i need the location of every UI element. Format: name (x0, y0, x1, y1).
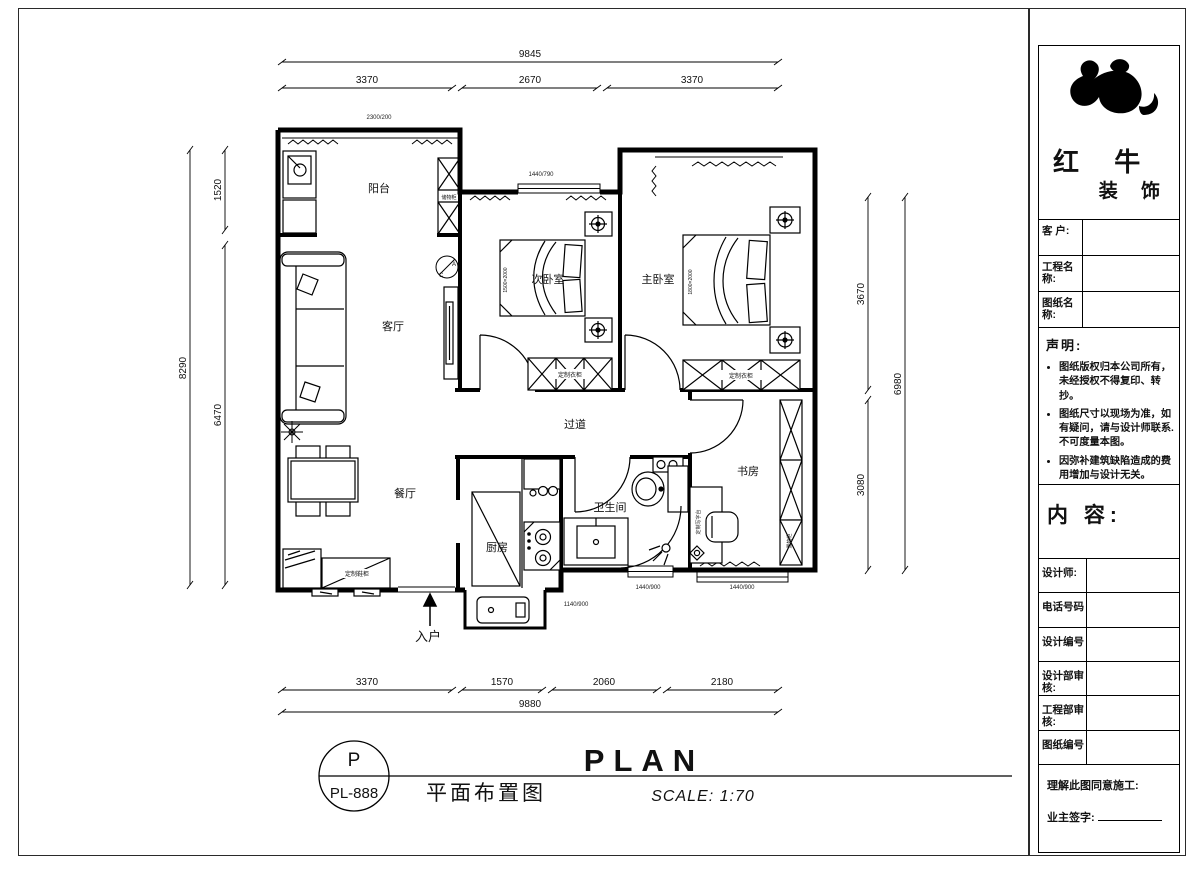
drawing-code-letter: P (348, 750, 361, 771)
brand-subname: 装 饰 (1099, 176, 1169, 203)
field-label-project: 工程名称: (1039, 256, 1083, 291)
entry-arrow (424, 594, 436, 626)
signature-line[interactable] (1098, 810, 1162, 821)
floor-plan-drawing: 储物柜 A C (0, 0, 1030, 869)
info-label-designer: 设计师: (1039, 559, 1087, 592)
content-heading: 内 容: (1039, 484, 1179, 558)
bed-master-size: 1800×2000 (688, 269, 694, 294)
washing-machine (283, 151, 316, 233)
dim-top-seg1: 3370 (356, 75, 379, 86)
dim-top-total: 9845 (519, 49, 542, 60)
info-value-eng-review[interactable] (1087, 696, 1179, 729)
dim-right-seg1: 3670 (856, 282, 867, 305)
info-value-design-review[interactable] (1087, 662, 1179, 695)
sofa (280, 252, 346, 424)
nightstands-master (770, 207, 800, 353)
nightstands-secondary (585, 212, 612, 342)
dim-right-seg2: 3080 (856, 473, 867, 496)
shoe-cabinet-label: 定制鞋柜 (345, 570, 369, 578)
field-row-drawing: 图纸名称: (1039, 291, 1179, 327)
drawing-title-en: PLAN (584, 743, 704, 778)
room-label-bedroom2: 次卧室 (532, 272, 565, 286)
brand-name: 红 牛 (1053, 142, 1154, 179)
field-value-drawing[interactable] (1083, 292, 1179, 327)
ac-letter-a: A (452, 262, 456, 268)
ac-letter-c: C (439, 273, 444, 279)
dim-bottom-seg2: 1570 (491, 677, 514, 688)
statement-item: 图纸版权归本公司所有，未经授权不得复印、转抄。 (1059, 361, 1174, 404)
plant (281, 421, 303, 443)
info-row-phone: 电话号码 (1039, 592, 1179, 626)
field-value-client[interactable] (1083, 220, 1179, 255)
dim-left-total: 8290 (178, 356, 189, 379)
company-logo-section: 红 牛 装 饰 (1039, 46, 1179, 219)
info-value-phone[interactable] (1087, 593, 1179, 626)
drawing-title-cn: 平面布置图 (426, 782, 546, 805)
approval-section: 理解此图同意施工: 业主签字: (1039, 764, 1179, 852)
info-row-sheet-no: 图纸编号 (1039, 730, 1179, 764)
opening-mark-1: 2300/200 (366, 115, 392, 121)
bull-logo-icon (1053, 54, 1165, 140)
dim-left-seg1: 1520 (213, 178, 224, 201)
bed-secondary-size: 1500×2000 (503, 267, 509, 292)
dim-bottom-total: 9880 (519, 699, 542, 710)
info-value-sheet-no[interactable] (1087, 731, 1179, 764)
opening-mark-2: 1440/790 (528, 172, 554, 178)
info-label-phone: 电话号码 (1039, 593, 1087, 626)
info-row-designer: 设计师: (1039, 558, 1179, 592)
room-label-bathroom: 卫生间 (594, 500, 627, 514)
title-block: 红 牛 装 饰 客 户: 工程名称: 图纸名称: 声明: 图纸版权归本公司所有，… (1038, 45, 1180, 853)
statement-section: 声明: 图纸版权归本公司所有，未经授权不得复印、转抄。 图纸尺寸以现场为准，如有… (1039, 327, 1179, 484)
opening-mark-5: 1440/900 (729, 585, 755, 591)
wardrobe-secondary-label: 定制衣柜 (558, 371, 582, 379)
room-label-balcony: 阳台 (368, 181, 390, 195)
info-value-design-no[interactable] (1087, 628, 1179, 661)
bookcase-label: 置物柜 (786, 533, 793, 548)
dim-bottom-seg4: 2180 (711, 677, 734, 688)
dim-left-seg2: 6470 (213, 403, 224, 426)
wardrobe-master-label: 定制衣柜 (729, 372, 753, 380)
tv-cabinet (444, 287, 458, 379)
kitchen-fittings (472, 459, 560, 623)
info-label-sheet-no: 图纸编号 (1039, 731, 1087, 764)
study-furniture (690, 400, 802, 565)
field-value-project[interactable] (1083, 256, 1179, 291)
opening-mark-4: 1440/900 (635, 585, 661, 591)
desk-label: 定制写字台 (695, 509, 702, 534)
dim-top-seg3: 3370 (681, 75, 704, 86)
statement-item: 图纸尺寸以现场为准，如有疑问，请与设计师联系.不可度量本图。 (1059, 408, 1174, 451)
room-label-bedroom1: 主卧室 (642, 272, 675, 286)
field-row-project: 工程名称: (1039, 255, 1179, 291)
room-label-dining: 餐厅 (394, 486, 416, 500)
dining-table-set (288, 446, 358, 516)
dim-top-seg2: 2670 (519, 75, 542, 86)
statement-heading: 声明: (1046, 335, 1174, 354)
footer-title: P PL-888 平面布置图 PLAN SCALE: 1:70 (319, 741, 1012, 811)
field-label-drawing: 图纸名称: (1039, 292, 1083, 327)
room-label-living: 客厅 (382, 319, 404, 333)
drawing-scale: SCALE: 1:70 (651, 788, 755, 805)
drawing-sheet: 储物柜 A C (0, 0, 1200, 869)
statement-list: 图纸版权归本公司所有，未经授权不得复印、转抄。 图纸尺寸以现场为准，如有疑问，请… (1046, 361, 1174, 483)
dim-right-total: 6980 (893, 372, 904, 395)
info-label-eng-review: 工程部审核: (1039, 696, 1087, 729)
bed-master (683, 235, 770, 325)
info-row-design-no: 设计编号 (1039, 627, 1179, 661)
statement-item: 因弥补建筑缺陷造成的费用增加与设计无关。 (1059, 455, 1174, 484)
info-label-design-no: 设计编号 (1039, 628, 1087, 661)
owner-signature-label: 业主签字: (1047, 812, 1095, 824)
room-label-kitchen: 厨房 (486, 541, 508, 554)
dim-bottom-seg1: 3370 (356, 677, 379, 688)
approval-line: 理解此图同意施工: (1047, 777, 1173, 793)
entry-label: 入户 (415, 629, 441, 644)
room-label-study: 书房 (737, 465, 759, 478)
info-value-designer[interactable] (1087, 559, 1179, 592)
info-label-design-review: 设计部审核: (1039, 662, 1087, 695)
field-row-client: 客 户: (1039, 219, 1179, 255)
room-label-corridor: 过道 (564, 417, 586, 431)
field-label-client: 客 户: (1039, 220, 1083, 255)
opening-mark-3: 1140/900 (564, 602, 589, 608)
dim-bottom-seg3: 2060 (593, 677, 616, 688)
balcony-cabinet-label: 储物柜 (441, 194, 456, 201)
info-row-design-review: 设计部审核: (1039, 661, 1179, 695)
info-row-eng-review: 工程部审核: (1039, 695, 1179, 729)
drawing-code-number: PL-888 (330, 785, 378, 802)
info-rows: 设计师: 电话号码 设计编号 设计部审核: 工程部审核: 图纸编号 (1039, 558, 1179, 764)
